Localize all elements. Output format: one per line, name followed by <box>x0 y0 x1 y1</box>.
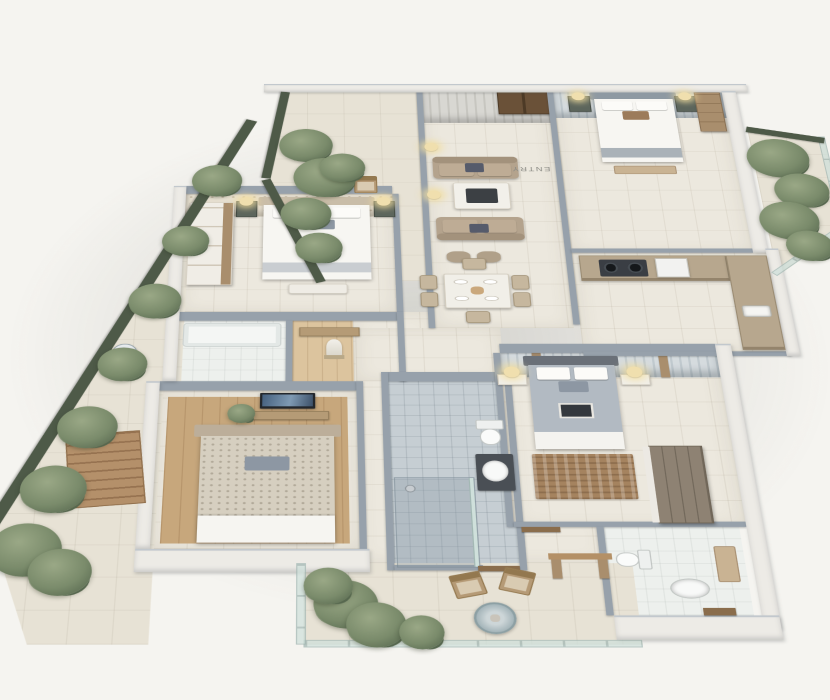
living-sofa-south <box>436 217 525 240</box>
dining-chair-e2 <box>513 292 532 306</box>
balcony-s-railing <box>303 640 643 648</box>
bedroom2-lamp-2 <box>677 92 691 100</box>
living-coffee-table <box>453 183 512 209</box>
entry-floor-label: ENTRY <box>501 163 560 172</box>
plant-s-3 <box>304 568 354 605</box>
floor-plan-render: ENTRY <box>0 0 830 700</box>
plant-s-2 <box>346 602 407 647</box>
bath2-vanity <box>475 454 516 491</box>
bedroom2-bed <box>593 92 683 162</box>
dining-chair-w2 <box>420 292 438 306</box>
apartment-plan: ENTRY <box>0 84 830 661</box>
dressing-console <box>299 327 359 336</box>
bath2-shower <box>394 477 481 567</box>
balcony-s-railing-west <box>296 563 306 644</box>
master-tv <box>260 393 315 409</box>
dining-chair-w1 <box>419 275 437 289</box>
bedroom3-bed <box>527 356 625 449</box>
outer-wall-north <box>264 84 748 92</box>
dining-chair-s <box>465 311 490 323</box>
bedroom2-bench <box>613 166 677 174</box>
dining-table <box>443 274 511 309</box>
bedroom3-lamp-1 <box>503 367 520 378</box>
wall-bath2-north <box>388 372 505 381</box>
kitchen-sink <box>741 305 772 317</box>
bath2-toilet <box>475 420 505 446</box>
plant-terrace-4 <box>295 233 343 263</box>
living-lamp-2 <box>427 190 441 199</box>
bedroom3-lamp-2 <box>626 367 643 378</box>
outer-wall-bath3-south <box>614 615 784 640</box>
master-bed <box>196 425 335 543</box>
bedroom3-rug <box>532 454 639 499</box>
master-tv-console <box>248 411 329 420</box>
wall-bath1-dressing <box>285 321 292 382</box>
bath3-window <box>703 608 737 615</box>
kitchen-appliance <box>655 258 691 277</box>
wall-master-north <box>159 381 356 390</box>
dining-chair-e1 <box>511 275 530 289</box>
bedroom2-lamp-1 <box>571 92 585 100</box>
kitchen-hob <box>598 260 648 277</box>
dining-chair-n <box>462 258 487 269</box>
plant-terrace-5 <box>319 154 365 182</box>
utility-door <box>521 527 560 532</box>
plant-terrace-3 <box>280 198 331 230</box>
plant-s-4 <box>399 615 446 649</box>
bath1-bathtub <box>182 323 281 347</box>
bedroom1-ottoman <box>288 284 347 294</box>
wall-bedroom2-south <box>571 249 753 253</box>
living-lamp-1 <box>424 143 438 151</box>
bath3-toilet <box>614 550 653 570</box>
terrace-chair <box>354 176 378 193</box>
dressing-statue <box>326 339 342 357</box>
bedroom1-lamp-2 <box>377 197 391 206</box>
balcony-s-pergola-post-1 <box>551 557 563 579</box>
wall-bedroom1-south <box>179 312 397 321</box>
scene-3d: ENTRY <box>6 84 824 700</box>
balcony-s-pergola-beam <box>548 553 612 559</box>
